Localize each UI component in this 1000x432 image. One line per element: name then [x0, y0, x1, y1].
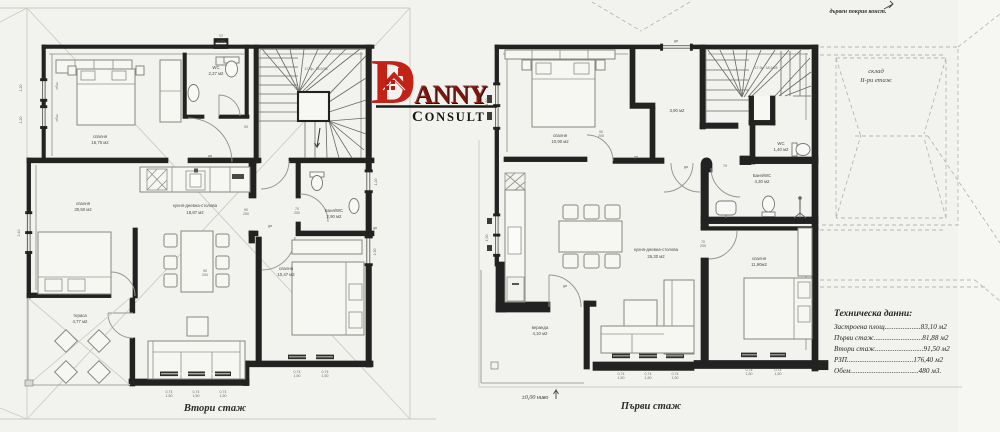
svg-text:веранда: веранда — [532, 325, 549, 330]
svg-text:10,90 м2: 10,90 м2 — [551, 139, 569, 144]
svg-text:1,50: 1,50 — [373, 249, 377, 256]
svg-text:200: 200 — [294, 211, 300, 215]
svg-text:1,50: 1,50 — [322, 374, 329, 378]
svg-text:2,27 м2: 2,27 м2 — [209, 71, 225, 76]
svg-text:ANNY: ANNY — [414, 80, 488, 109]
svg-text:1,50: 1,50 — [746, 372, 753, 376]
svg-text:26,30 м2: 26,30 м2 — [647, 254, 665, 259]
svg-text:200: 200 — [243, 212, 249, 216]
svg-text:II-ри етаж: II-ри етаж — [859, 77, 892, 84]
svg-text:17 бр. 18,5/28: 17 бр. 18,5/28 — [304, 67, 327, 71]
svg-text:4,10 м2: 4,10 м2 — [533, 331, 549, 336]
svg-text:кухня-дневна-столова: кухня-дневна-столова — [173, 203, 218, 208]
svg-text:17 бр. 18,5/28: 17 бр. 18,5/28 — [754, 66, 777, 70]
svg-text:WC: WC — [212, 65, 219, 70]
svg-text:Баня/WC: Баня/WC — [325, 208, 343, 213]
svg-text:спалня: спалня — [76, 201, 91, 206]
svg-text:кухня-дневна-столова: кухня-дневна-столова — [634, 247, 679, 252]
svg-text:дв: дв — [208, 154, 212, 158]
svg-text:WC: WC — [777, 141, 784, 146]
svg-text:дв: дв — [373, 226, 377, 230]
svg-text:Втори стаж: Втори стаж — [183, 403, 246, 414]
svg-text:спалня: спалня — [93, 134, 108, 139]
svg-text:4,77 м2: 4,77 м2 — [73, 319, 89, 324]
svg-text:Първи стаж: Първи стаж — [620, 401, 681, 412]
svg-text:Обем..........................: Обем....................................… — [834, 367, 941, 375]
svg-text:склад: склад — [868, 68, 884, 75]
svg-text:1,20: 1,20 — [374, 179, 378, 186]
svg-text:Техническа данни:: Техническа данни: — [834, 308, 912, 319]
svg-text:CONSULT: CONSULT — [412, 109, 486, 125]
svg-text:200: 200 — [700, 244, 706, 248]
svg-text:1,20: 1,20 — [19, 117, 23, 124]
svg-text:18,87 м2: 18,87 м2 — [186, 210, 204, 215]
svg-text:1,50: 1,50 — [485, 235, 489, 242]
svg-text:1,40 м2: 1,40 м2 — [774, 147, 790, 152]
svg-text:4,30 м2: 4,30 м2 — [755, 179, 771, 184]
svg-text:1,50: 1,50 — [166, 394, 173, 398]
svg-text:Баня/WC: Баня/WC — [753, 173, 771, 178]
svg-text:обш: обш — [55, 82, 59, 89]
svg-text:Ш: Ш — [219, 34, 222, 38]
svg-text:10,47 м2: 10,47 м2 — [277, 272, 295, 277]
svg-text:2,40: 2,40 — [17, 230, 21, 237]
svg-text:дв: дв — [674, 39, 678, 43]
svg-text:15,75 м2: 15,75 м2 — [91, 140, 109, 145]
svg-text:1,50: 1,50 — [775, 372, 782, 376]
svg-text:Застроена площ................: Застроена площ....................83,10 … — [834, 323, 947, 331]
svg-text:спалня: спалня — [752, 256, 767, 261]
svg-text:30,50 м2: 30,50 м2 — [74, 207, 92, 212]
svg-text:обш: обш — [55, 114, 59, 121]
svg-text:дървен покрив конст.: дървен покрив конст. — [829, 8, 887, 15]
svg-text:спалня: спалня — [553, 133, 568, 138]
svg-text:Първи стаж....................: Първи стаж...........................81,… — [833, 334, 949, 342]
svg-text:3,90 м2: 3,90 м2 — [670, 108, 686, 113]
svg-text:РЗП...........................: РЗП.....................................… — [833, 356, 944, 364]
svg-text:дв: дв — [563, 284, 567, 288]
svg-text:2,90 м2: 2,90 м2 — [327, 214, 343, 219]
svg-text:1,20: 1,20 — [19, 85, 23, 92]
svg-text:спалня: спалня — [279, 266, 294, 271]
svg-text:11,90м2: 11,90м2 — [751, 262, 767, 267]
svg-text:1,50: 1,50 — [220, 394, 227, 398]
svg-text:дв: дв — [268, 224, 272, 228]
svg-text:тераса: тераса — [73, 313, 87, 318]
svg-text:1,50: 1,50 — [193, 394, 200, 398]
svg-text:1,50: 1,50 — [618, 376, 625, 380]
svg-text:дв: дв — [684, 165, 688, 169]
svg-text:0,70: 0,70 — [218, 40, 225, 44]
svg-text:70: 70 — [723, 164, 727, 168]
svg-text:1,50: 1,50 — [294, 374, 301, 378]
svg-text:200: 200 — [202, 273, 208, 277]
svg-text:1,50: 1,50 — [672, 376, 679, 380]
svg-text:1,50: 1,50 — [645, 376, 652, 380]
svg-text:±0,00 ниво: ±0,00 ниво — [522, 395, 549, 401]
svg-text:90: 90 — [244, 125, 248, 129]
svg-text:Втори стаж....................: Втори стаж...........................91,… — [834, 345, 950, 353]
svg-text:200: 200 — [598, 134, 604, 138]
svg-text:дв: дв — [634, 155, 638, 159]
